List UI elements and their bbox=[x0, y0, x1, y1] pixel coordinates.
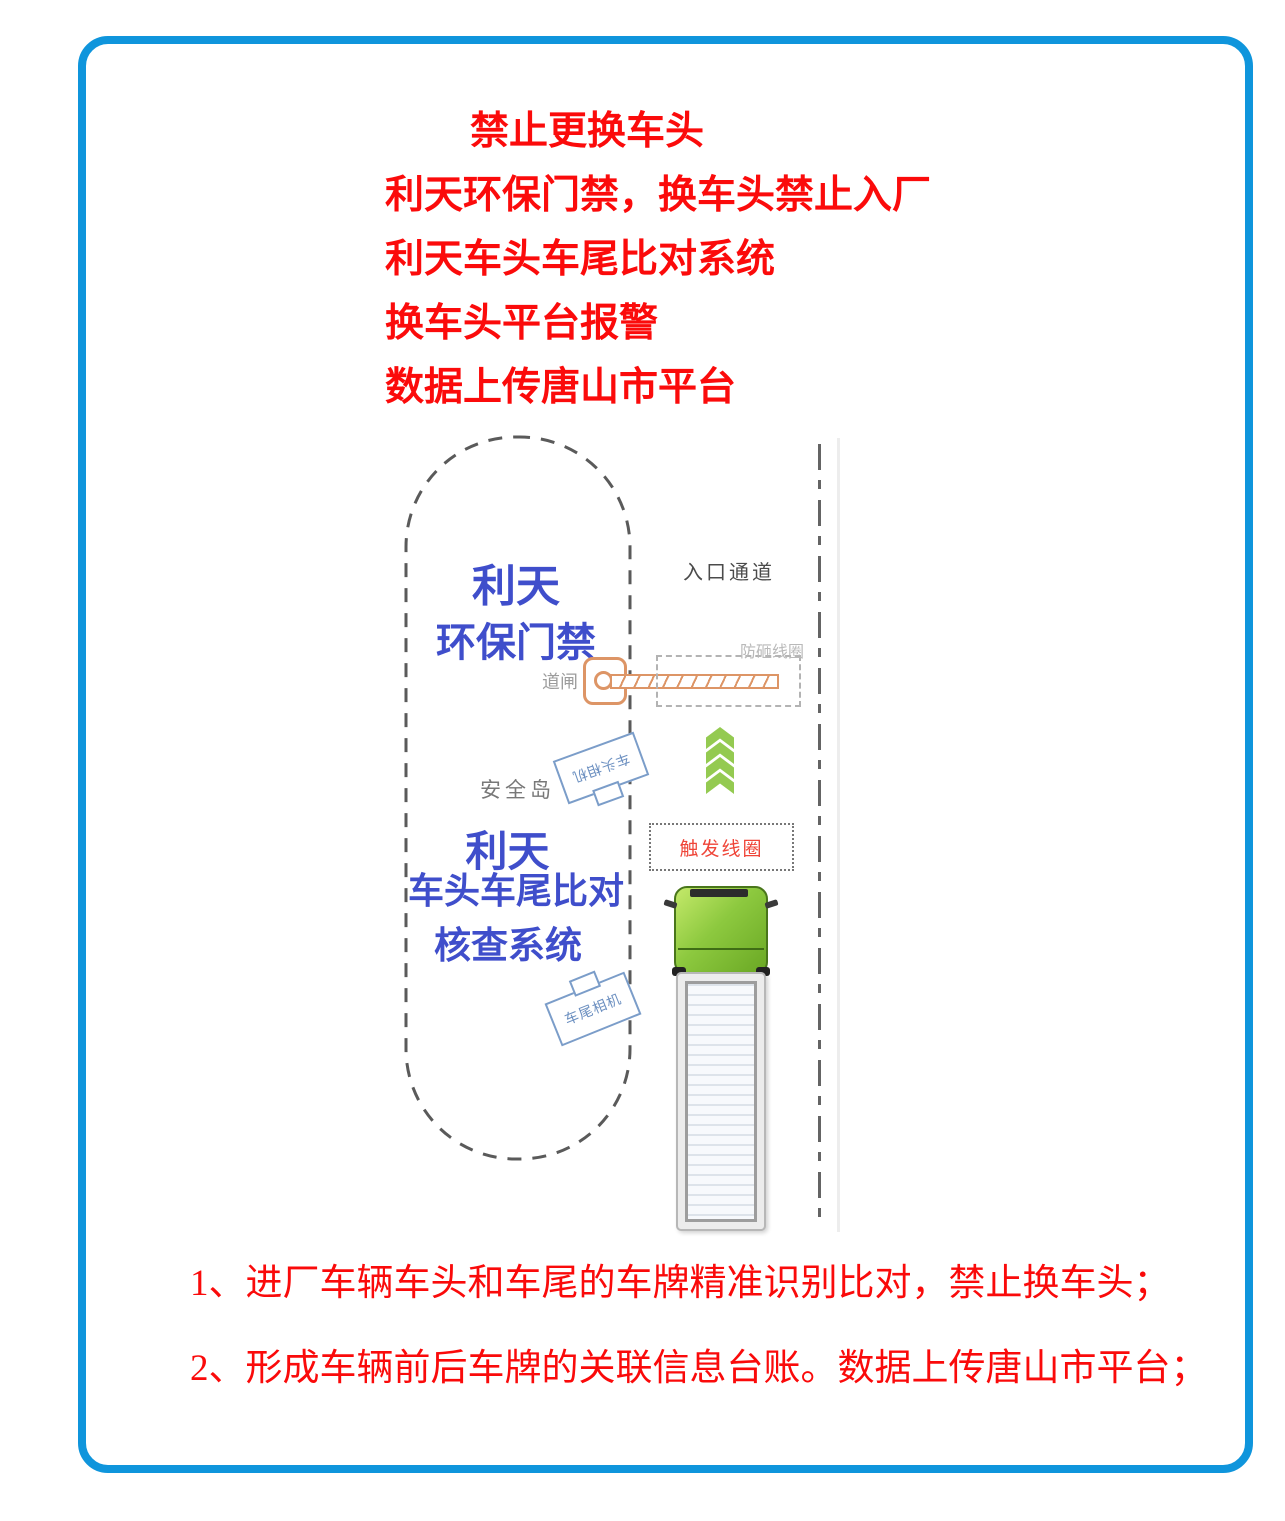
headline-line-4: 换车头平台报警 bbox=[385, 292, 931, 356]
trigger-coil-label: 触发线圈 bbox=[679, 834, 763, 861]
headline-line-3: 利天车头车尾比对系统 bbox=[385, 228, 931, 292]
trigger-coil-box: 触发线圈 bbox=[649, 823, 794, 871]
truck-trailer-top bbox=[685, 981, 757, 1222]
truck-windshield bbox=[690, 889, 748, 897]
footer-note-2: 2、形成车辆前后车牌的关联信息台账。数据上传唐山市平台； bbox=[190, 1337, 1208, 1391]
truck-mirror-right bbox=[764, 899, 778, 909]
head-camera-label: 车头相机 bbox=[569, 748, 632, 787]
gate-system-diagram: 利天 环保门禁 入口通道 道闸 防砸线圈 车头相机 安全岛 利天 车头车尾比对 … bbox=[390, 438, 840, 1232]
footer-note-1: 1、进厂车辆车头和车尾的车牌精准识别比对，禁止换车头； bbox=[190, 1252, 1171, 1306]
direction-arrows-icon bbox=[706, 727, 734, 794]
entrance-lane-label: 入口通道 bbox=[683, 556, 775, 585]
safety-island-label: 安全岛 bbox=[480, 774, 555, 804]
tail-camera-label: 车尾相机 bbox=[561, 988, 624, 1029]
truck-trailer bbox=[676, 972, 766, 1231]
headline-line-1: 禁止更换车头 bbox=[385, 100, 931, 164]
headline-block: 禁止更换车头 利天环保门禁，换车头禁止入厂 利天车头车尾比对系统 换车头平台报警… bbox=[385, 100, 931, 420]
system-title-line3: 核查系统 bbox=[408, 915, 608, 969]
anti-smash-coil-box bbox=[656, 655, 801, 707]
barrier-gate-label: 道闸 bbox=[542, 668, 578, 694]
truck-mirror-left bbox=[663, 899, 677, 909]
lane-divider-dashed-line bbox=[818, 444, 821, 1226]
truck-cab-seam bbox=[678, 948, 764, 950]
truck-cab bbox=[674, 886, 768, 975]
system-title-line2: 车头车尾比对 bbox=[408, 862, 623, 914]
anti-smash-coil-label: 防砸线圈 bbox=[740, 638, 804, 662]
headline-line-5: 数据上传唐山市平台 bbox=[385, 356, 931, 420]
headline-line-2: 利天环保门禁，换车头禁止入厂 bbox=[385, 164, 931, 228]
gate-title-line1: 利天 bbox=[390, 550, 642, 614]
